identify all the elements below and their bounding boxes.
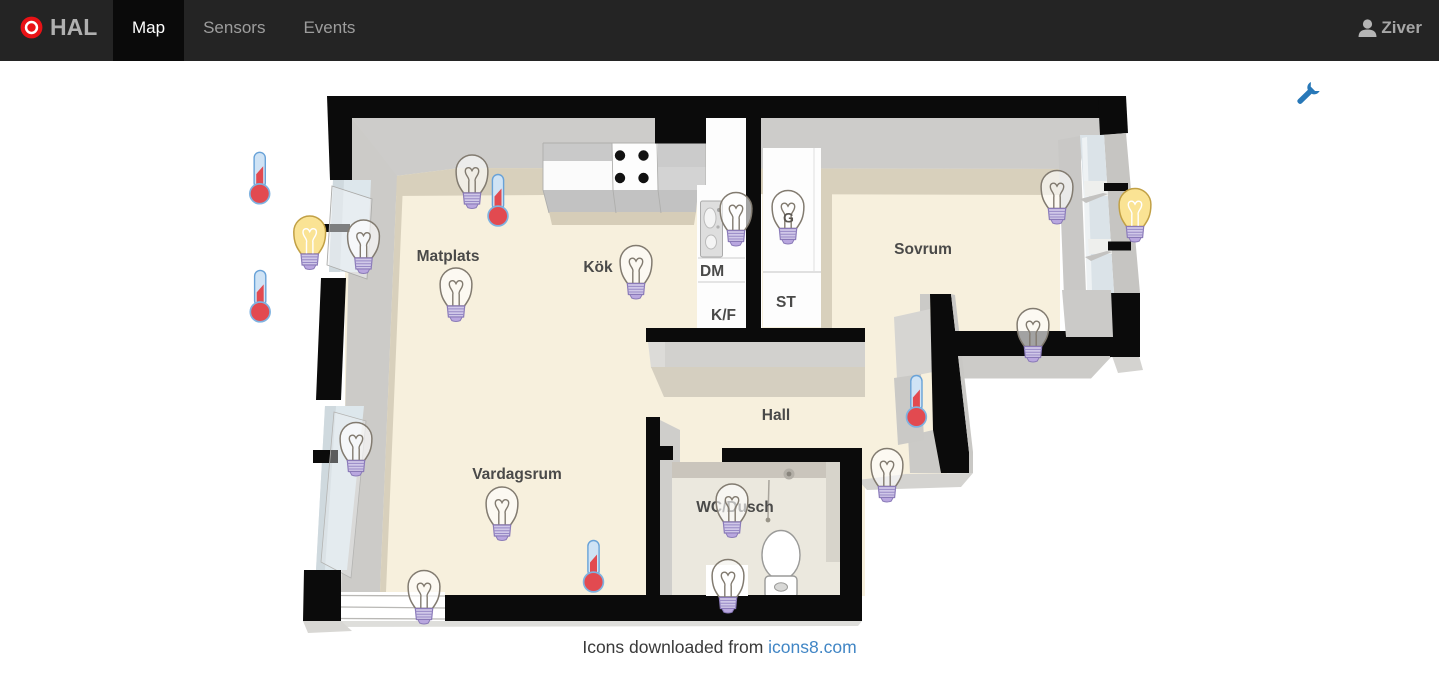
svg-text:Hall: Hall (762, 407, 790, 424)
svg-text:ST: ST (776, 294, 796, 311)
svg-text:K/F: K/F (711, 307, 736, 324)
svg-text:G: G (783, 210, 794, 226)
svg-text:Matplats: Matplats (417, 248, 480, 265)
svg-text:Sovrum: Sovrum (894, 241, 952, 258)
svg-text:DM: DM (700, 263, 724, 280)
svg-text:Kök: Kök (583, 259, 613, 276)
svg-text:Vardagsrum: Vardagsrum (472, 466, 562, 483)
